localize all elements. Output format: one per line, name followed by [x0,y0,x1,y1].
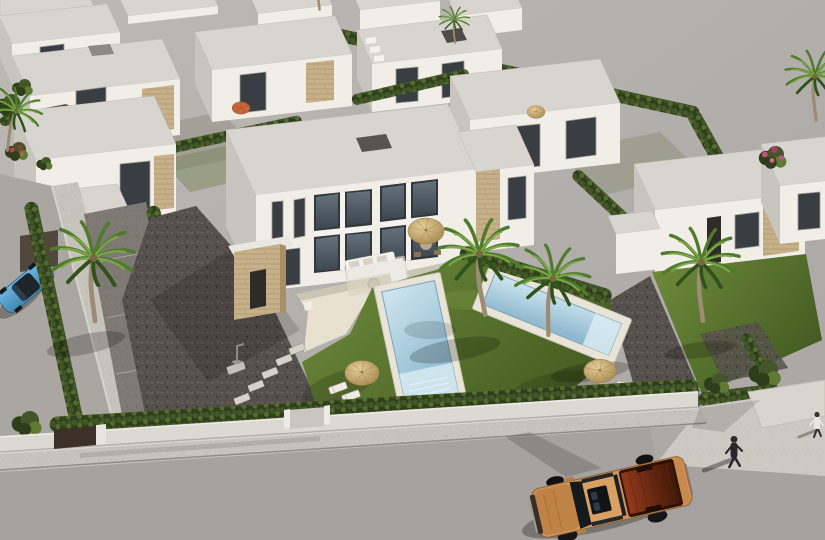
stone-entrance-pillar [228,236,294,320]
villa-development-render [0,0,825,540]
gate-pillar [284,409,290,429]
stone-panel [154,154,174,210]
gate-pillar [324,405,330,425]
orange-parasol [232,102,250,114]
rooftop-ac-unit [88,44,114,56]
stone-panel [306,60,334,103]
planter [303,301,312,310]
pedestrian-gate-opening [288,407,326,429]
villa-mid-back [195,16,352,122]
driveway-gate [54,426,96,449]
render-canvas: High-angle render of rows of white flat-… [0,0,825,540]
straw-parasol-back [527,106,545,119]
gate-pillar [96,424,106,445]
straw-parasol-terrace [408,218,444,244]
entrance-door [250,269,266,309]
